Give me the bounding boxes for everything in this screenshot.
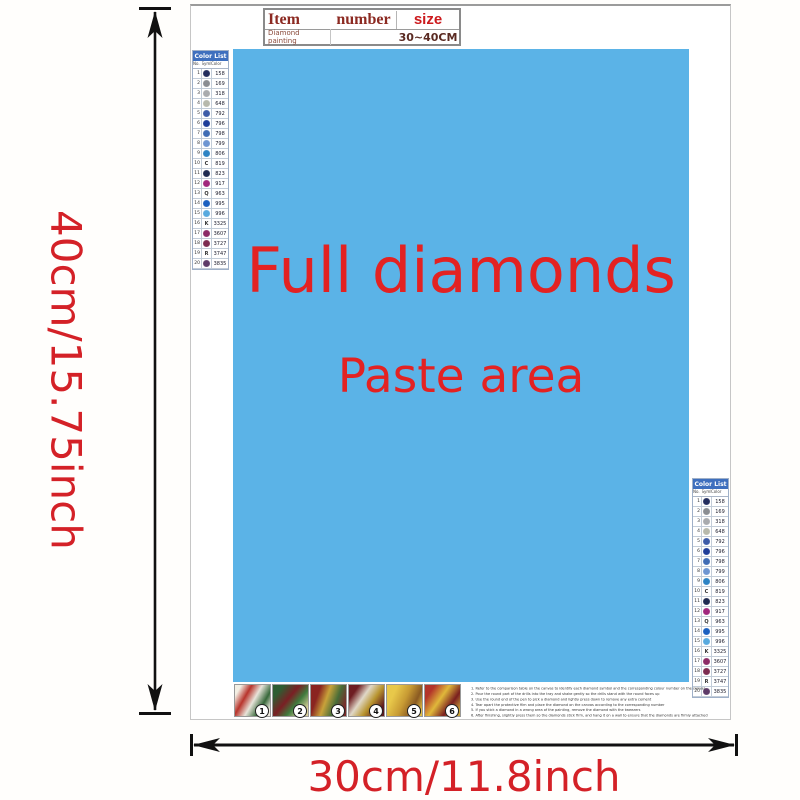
color-list-row: 183727 bbox=[193, 239, 228, 249]
color-list-row: 7798 bbox=[193, 129, 228, 139]
color-list-row: 15996 bbox=[193, 209, 228, 219]
color-code: 3325 bbox=[712, 649, 728, 655]
color-swatch-dot bbox=[203, 260, 210, 267]
number-header-cell: number bbox=[331, 11, 397, 29]
color-code: 798 bbox=[212, 131, 228, 137]
color-swatch-dot bbox=[703, 628, 710, 635]
color-symbol-letter: Q bbox=[204, 191, 208, 197]
poster: Item number size Diamond painting 30~40C… bbox=[190, 4, 731, 720]
color-row-number: 5 bbox=[693, 537, 702, 546]
color-symbol-cell bbox=[202, 149, 212, 158]
paste-area: Full diamonds Paste area bbox=[233, 49, 689, 682]
color-code: 318 bbox=[212, 91, 228, 97]
color-code: 819 bbox=[212, 161, 228, 167]
color-row-number: 15 bbox=[693, 637, 702, 646]
color-symbol-cell bbox=[702, 667, 712, 676]
step-number-badge: 5 bbox=[407, 704, 421, 718]
color-symbol-letter: Q bbox=[704, 619, 708, 625]
color-row-number: 16 bbox=[193, 219, 202, 228]
color-code: 3727 bbox=[712, 669, 728, 675]
color-list-row: 9806 bbox=[193, 149, 228, 159]
color-symbol-cell bbox=[702, 537, 712, 546]
color-swatch-dot bbox=[203, 110, 210, 117]
color-list-row: 173607 bbox=[693, 657, 728, 667]
color-list-row: 19R3747 bbox=[193, 249, 228, 259]
step-number-badge: 2 bbox=[293, 704, 307, 718]
color-code: 169 bbox=[212, 81, 228, 87]
color-row-number: 7 bbox=[693, 557, 702, 566]
color-symbol-cell: R bbox=[702, 677, 712, 686]
color-code: 806 bbox=[712, 579, 728, 585]
color-code: 799 bbox=[712, 569, 728, 575]
color-code: 158 bbox=[712, 499, 728, 505]
color-code: 917 bbox=[712, 609, 728, 615]
color-symbol-letter: K bbox=[705, 649, 709, 655]
instruction-line: 6. After finishing, slightly press them … bbox=[471, 713, 729, 718]
color-row-number: 17 bbox=[193, 229, 202, 238]
color-symbol-cell bbox=[202, 99, 212, 108]
width-label: 30cm/11.8inch bbox=[190, 752, 738, 800]
color-swatch-dot bbox=[703, 608, 710, 615]
color-code: 318 bbox=[712, 519, 728, 525]
paste-area-subtitle: Paste area bbox=[338, 349, 585, 404]
color-symbol-cell bbox=[702, 557, 712, 566]
color-list-row: 4648 bbox=[193, 99, 228, 109]
color-swatch-dot bbox=[203, 120, 210, 127]
color-row-number: 13 bbox=[693, 617, 702, 626]
color-code: 792 bbox=[212, 111, 228, 117]
color-list-row: 16K3325 bbox=[693, 647, 728, 657]
color-symbol-cell bbox=[702, 547, 712, 556]
color-swatch-dot bbox=[203, 140, 210, 147]
color-row-number: 4 bbox=[693, 527, 702, 536]
color-list-row: 13Q963 bbox=[693, 617, 728, 627]
color-row-number: 14 bbox=[693, 627, 702, 636]
color-code: 648 bbox=[212, 101, 228, 107]
color-symbol-cell bbox=[202, 259, 212, 268]
color-list-row: 10C819 bbox=[193, 159, 228, 169]
color-symbol-cell: K bbox=[702, 647, 712, 656]
color-swatch-dot bbox=[203, 230, 210, 237]
color-swatch-dot bbox=[703, 668, 710, 675]
color-row-number: 2 bbox=[693, 507, 702, 516]
color-swatch-dot bbox=[203, 90, 210, 97]
size-header-cell: size bbox=[397, 11, 459, 28]
color-symbol-cell bbox=[702, 527, 712, 536]
color-list-row: 2169 bbox=[693, 507, 728, 517]
vertical-dimension-arrow bbox=[137, 2, 173, 720]
step-tile: 2 bbox=[272, 684, 309, 717]
color-list-column-label: No. bbox=[193, 61, 202, 68]
color-list-row: 5792 bbox=[693, 537, 728, 547]
color-swatch-dot bbox=[203, 150, 210, 157]
color-row-number: 20 bbox=[193, 259, 202, 268]
color-row-number: 9 bbox=[693, 577, 702, 586]
height-label: 40cm/15.75inch bbox=[34, 170, 98, 590]
color-symbol-cell bbox=[202, 109, 212, 118]
color-swatch-dot bbox=[703, 508, 710, 515]
color-swatch-dot bbox=[203, 240, 210, 247]
color-row-number: 17 bbox=[693, 657, 702, 666]
color-symbol-cell bbox=[202, 89, 212, 98]
color-swatch-dot bbox=[703, 598, 710, 605]
color-row-number: 12 bbox=[693, 607, 702, 616]
color-list-column-label: Symbol bbox=[702, 489, 711, 496]
color-symbol-cell: R bbox=[202, 249, 212, 258]
color-code: 3607 bbox=[212, 231, 228, 237]
color-code: 996 bbox=[712, 639, 728, 645]
color-swatch-dot bbox=[203, 130, 210, 137]
color-list-row: 203835 bbox=[193, 259, 228, 269]
color-row-number: 3 bbox=[693, 517, 702, 526]
color-row-number: 18 bbox=[693, 667, 702, 676]
color-list-row: 12917 bbox=[693, 607, 728, 617]
color-symbol-cell bbox=[702, 497, 712, 506]
item-table: Item number size Diamond painting 30~40C… bbox=[263, 8, 461, 46]
color-symbol-cell bbox=[202, 129, 212, 138]
item-header-cell: Item bbox=[265, 11, 331, 29]
color-row-number: 19 bbox=[193, 249, 202, 258]
color-code: 995 bbox=[212, 201, 228, 207]
color-list-row: 3318 bbox=[693, 517, 728, 527]
color-symbol-letter: C bbox=[705, 589, 709, 595]
step-tile: 5 bbox=[386, 684, 423, 717]
color-list-row: 15996 bbox=[693, 637, 728, 647]
color-symbol-cell bbox=[202, 199, 212, 208]
color-symbol-cell bbox=[702, 657, 712, 666]
color-swatch-dot bbox=[703, 528, 710, 535]
item-name-cell: Diamond painting bbox=[265, 29, 331, 45]
color-list-row: 1158 bbox=[193, 69, 228, 79]
color-code: 3325 bbox=[212, 221, 228, 227]
color-row-number: 16 bbox=[693, 647, 702, 656]
steps-strip: 123456 bbox=[234, 684, 461, 717]
color-row-number: 10 bbox=[693, 587, 702, 596]
color-symbol-cell bbox=[202, 79, 212, 88]
color-swatch-dot bbox=[703, 558, 710, 565]
color-code: 917 bbox=[212, 181, 228, 187]
color-row-number: 8 bbox=[693, 567, 702, 576]
color-row-number: 19 bbox=[693, 677, 702, 686]
color-list-row: 13Q963 bbox=[193, 189, 228, 199]
step-tile: 1 bbox=[234, 684, 271, 717]
color-symbol-cell bbox=[702, 597, 712, 606]
color-code: 806 bbox=[212, 151, 228, 157]
color-row-number: 3 bbox=[193, 89, 202, 98]
color-swatch-dot bbox=[203, 170, 210, 177]
color-list-row: 9806 bbox=[693, 577, 728, 587]
color-swatch-dot bbox=[203, 180, 210, 187]
color-symbol-cell bbox=[202, 229, 212, 238]
color-list-title: Color List bbox=[693, 479, 728, 489]
color-row-number: 10 bbox=[193, 159, 202, 168]
color-swatch-dot bbox=[703, 568, 710, 575]
color-code: 796 bbox=[212, 121, 228, 127]
color-row-number: 14 bbox=[193, 199, 202, 208]
color-swatch-dot bbox=[703, 538, 710, 545]
color-list-right: Color ListNo.SymbolColor1158216933184648… bbox=[692, 478, 729, 698]
color-row-number: 13 bbox=[193, 189, 202, 198]
color-code: 798 bbox=[712, 559, 728, 565]
color-symbol-cell bbox=[702, 517, 712, 526]
item-table-row: Diamond painting 30~40CM bbox=[265, 30, 459, 44]
color-swatch-dot bbox=[703, 578, 710, 585]
color-list-title: Color List bbox=[193, 51, 228, 61]
color-list-row: 4648 bbox=[693, 527, 728, 537]
color-row-number: 5 bbox=[193, 109, 202, 118]
color-row-number: 11 bbox=[193, 169, 202, 178]
color-swatch-dot bbox=[203, 100, 210, 107]
color-list-row: 6796 bbox=[693, 547, 728, 557]
color-code: 3747 bbox=[212, 251, 228, 257]
step-number-badge: 6 bbox=[445, 704, 459, 718]
color-list-columns: No.SymbolColor bbox=[693, 489, 728, 497]
color-row-number: 8 bbox=[193, 139, 202, 148]
color-symbol-cell bbox=[702, 577, 712, 586]
color-symbol-cell: Q bbox=[702, 617, 712, 626]
color-code: 158 bbox=[212, 71, 228, 77]
color-list-column-label: Color bbox=[211, 61, 228, 68]
color-code: 3835 bbox=[212, 261, 228, 267]
color-symbol-cell: C bbox=[202, 159, 212, 168]
step-tile: 4 bbox=[348, 684, 385, 717]
color-code: 819 bbox=[712, 589, 728, 595]
color-code: 3607 bbox=[712, 659, 728, 665]
color-symbol-cell bbox=[202, 209, 212, 218]
color-list-row: 2169 bbox=[193, 79, 228, 89]
color-list-row: 7798 bbox=[693, 557, 728, 567]
color-code: 963 bbox=[712, 619, 728, 625]
color-list-row: 183727 bbox=[693, 667, 728, 677]
color-row-number: 4 bbox=[193, 99, 202, 108]
color-list-row: 6796 bbox=[193, 119, 228, 129]
color-list-row: 5792 bbox=[193, 109, 228, 119]
color-code: 3727 bbox=[212, 241, 228, 247]
color-list-column-label: Symbol bbox=[202, 61, 211, 68]
color-symbol-cell: K bbox=[202, 219, 212, 228]
color-symbol-cell bbox=[202, 169, 212, 178]
color-swatch-dot bbox=[203, 70, 210, 77]
product-image: 40cm/15.75inch Item number size Diamond … bbox=[0, 0, 800, 800]
color-symbol-cell bbox=[202, 139, 212, 148]
color-symbol-letter: C bbox=[205, 161, 209, 167]
color-list-row: 10C819 bbox=[693, 587, 728, 597]
color-symbol-cell bbox=[702, 567, 712, 576]
color-list-row: 12917 bbox=[193, 179, 228, 189]
color-row-number: 6 bbox=[193, 119, 202, 128]
color-swatch-dot bbox=[203, 200, 210, 207]
color-list-row: 14995 bbox=[693, 627, 728, 637]
step-tile: 3 bbox=[310, 684, 347, 717]
color-swatch-dot bbox=[203, 80, 210, 87]
color-swatch-dot bbox=[703, 638, 710, 645]
color-list-row: 14995 bbox=[193, 199, 228, 209]
color-symbol-cell bbox=[202, 69, 212, 78]
step-number-badge: 4 bbox=[369, 704, 383, 718]
color-row-number: 15 bbox=[193, 209, 202, 218]
color-row-number: 12 bbox=[193, 179, 202, 188]
color-symbol-cell: Q bbox=[202, 189, 212, 198]
color-symbol-cell bbox=[702, 607, 712, 616]
instructions-block: 1. Refer to the comparison table on the … bbox=[471, 686, 729, 722]
instructions-text: 1. Refer to the comparison table on the … bbox=[471, 686, 729, 719]
paste-area-title: Full diamonds bbox=[246, 234, 676, 307]
color-row-number: 18 bbox=[193, 239, 202, 248]
color-list-row: 11823 bbox=[193, 169, 228, 179]
color-swatch-dot bbox=[703, 518, 710, 525]
color-code: 823 bbox=[712, 599, 728, 605]
color-symbol-cell bbox=[202, 239, 212, 248]
item-table-header: Item number size bbox=[265, 10, 459, 30]
color-code: 648 bbox=[712, 529, 728, 535]
color-row-number: 7 bbox=[193, 129, 202, 138]
color-list-row: 3318 bbox=[193, 89, 228, 99]
color-row-number: 9 bbox=[193, 149, 202, 158]
color-row-number: 2 bbox=[193, 79, 202, 88]
color-code: 823 bbox=[212, 171, 228, 177]
color-row-number: 11 bbox=[693, 597, 702, 606]
color-list-row: 1158 bbox=[693, 497, 728, 507]
color-swatch-dot bbox=[703, 498, 710, 505]
color-swatch-dot bbox=[703, 658, 710, 665]
color-list-row: 8799 bbox=[193, 139, 228, 149]
step-number-badge: 3 bbox=[331, 704, 345, 718]
color-row-number: 1 bbox=[693, 497, 702, 506]
color-list-column-label: No. bbox=[693, 489, 702, 496]
color-code: 996 bbox=[212, 211, 228, 217]
color-symbol-letter: R bbox=[205, 251, 209, 257]
color-row-number: 6 bbox=[693, 547, 702, 556]
color-list-left: Color ListNo.SymbolColor1158216933184648… bbox=[192, 50, 229, 270]
color-symbol-cell bbox=[702, 637, 712, 646]
color-code: 796 bbox=[712, 549, 728, 555]
color-symbol-letter: K bbox=[205, 221, 209, 227]
color-list-row: 11823 bbox=[693, 597, 728, 607]
color-list-column-label: Color bbox=[711, 489, 728, 496]
color-list-row: 173607 bbox=[193, 229, 228, 239]
color-code: 995 bbox=[712, 629, 728, 635]
color-symbol-letter: R bbox=[705, 679, 709, 685]
color-symbol-cell bbox=[702, 507, 712, 516]
color-swatch-dot bbox=[203, 210, 210, 217]
color-code: 799 bbox=[212, 141, 228, 147]
color-list-columns: No.SymbolColor bbox=[193, 61, 228, 69]
color-swatch-dot bbox=[703, 548, 710, 555]
step-tile: 6 bbox=[424, 684, 461, 717]
color-list-row: 8799 bbox=[693, 567, 728, 577]
color-symbol-cell bbox=[202, 179, 212, 188]
color-code: 963 bbox=[212, 191, 228, 197]
color-symbol-cell bbox=[702, 627, 712, 636]
color-code: 3747 bbox=[712, 679, 728, 685]
step-number-badge: 1 bbox=[255, 704, 269, 718]
color-code: 792 bbox=[712, 539, 728, 545]
color-code: 169 bbox=[712, 509, 728, 515]
color-symbol-cell bbox=[202, 119, 212, 128]
size-value-cell: 30~40CM bbox=[397, 31, 459, 44]
color-symbol-cell: C bbox=[702, 587, 712, 596]
color-list-row: 16K3325 bbox=[193, 219, 228, 229]
color-row-number: 1 bbox=[193, 69, 202, 78]
